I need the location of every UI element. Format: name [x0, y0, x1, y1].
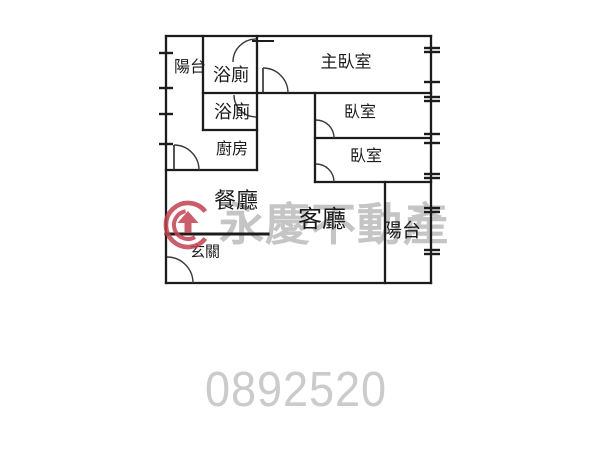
- yungching-logo-icon: [0, 0, 600, 450]
- floorplan-page: 永慶不動產 0892520: [0, 0, 600, 450]
- logo-arrow-stem: [185, 223, 192, 233]
